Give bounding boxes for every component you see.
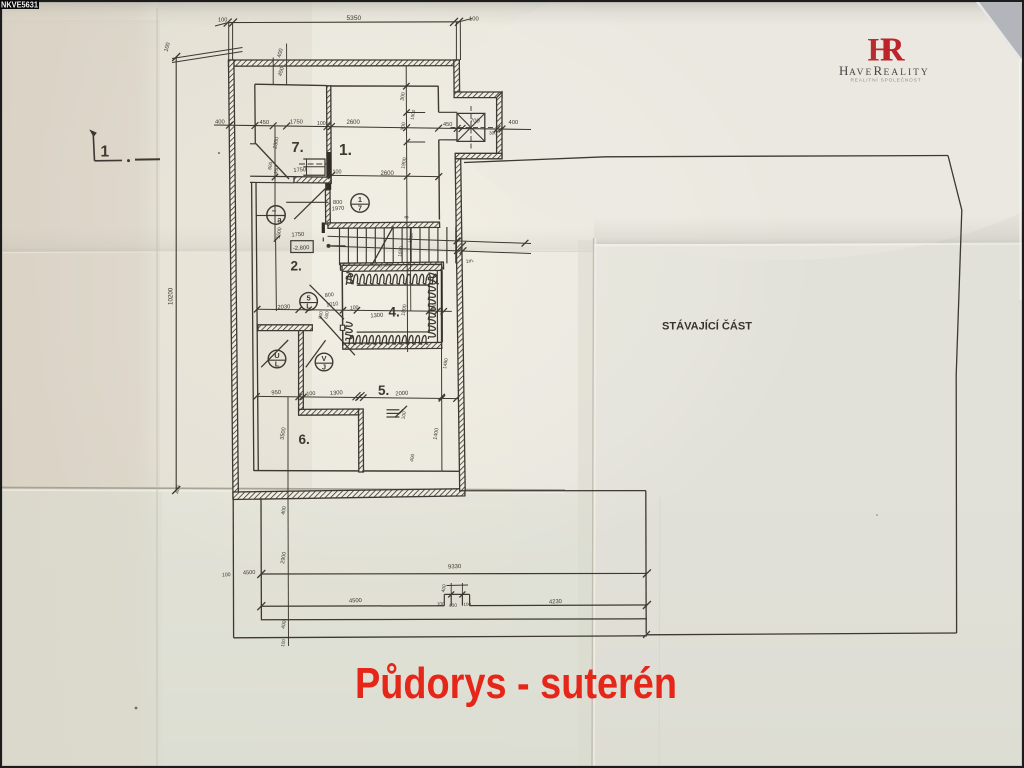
svg-text:10200: 10200 xyxy=(168,287,175,305)
svg-text:Půdorys - suterén: Půdorys - suterén xyxy=(355,660,677,708)
svg-text:100: 100 xyxy=(463,602,471,607)
svg-text:100: 100 xyxy=(306,391,315,398)
svg-text:2600: 2600 xyxy=(347,120,361,126)
svg-text:1750: 1750 xyxy=(291,232,304,239)
svg-text:300: 300 xyxy=(489,131,497,137)
svg-text:100: 100 xyxy=(333,170,342,176)
svg-text:a: a xyxy=(277,216,282,225)
svg-text:100: 100 xyxy=(350,305,359,312)
svg-text:1010: 1010 xyxy=(326,301,339,308)
svg-text:100: 100 xyxy=(222,572,231,578)
svg-text:30: 30 xyxy=(377,263,383,268)
svg-text:EALITY: EALITY xyxy=(884,68,930,78)
svg-text:380: 380 xyxy=(385,262,393,267)
svg-text:400: 400 xyxy=(215,120,225,126)
svg-text:7.: 7. xyxy=(292,140,304,156)
svg-text:2600: 2600 xyxy=(381,171,395,177)
svg-text:5350: 5350 xyxy=(347,15,362,22)
svg-text:1.: 1. xyxy=(339,142,352,159)
svg-text:1750: 1750 xyxy=(293,167,306,174)
svg-text:1: 1 xyxy=(101,144,110,161)
svg-text:450: 450 xyxy=(443,122,452,128)
svg-text:L: L xyxy=(306,302,311,311)
svg-text:J: J xyxy=(322,362,326,371)
svg-text:9330: 9330 xyxy=(448,564,462,570)
svg-text:950: 950 xyxy=(271,390,281,397)
svg-text:100: 100 xyxy=(469,17,479,23)
svg-text:R: R xyxy=(874,63,883,78)
svg-text:NKVE5631: NKVE5631 xyxy=(1,0,39,9)
svg-text:100: 100 xyxy=(317,121,326,127)
svg-text:450: 450 xyxy=(260,120,270,126)
svg-text:4500: 4500 xyxy=(349,598,362,604)
svg-text:−: − xyxy=(272,207,277,216)
svg-text:5.: 5. xyxy=(378,383,389,398)
svg-text:400: 400 xyxy=(509,120,519,126)
svg-text:400: 400 xyxy=(449,603,458,609)
svg-text:1970: 1970 xyxy=(332,206,345,213)
svg-text:R: R xyxy=(880,32,905,69)
svg-text:STÁVAJÍCÍ ČÁST: STÁVAJÍCÍ ČÁST xyxy=(662,320,753,333)
svg-text:2030: 2030 xyxy=(277,304,290,311)
svg-text:100: 100 xyxy=(437,601,445,606)
svg-text:REALITNÍ SPOLEČNOST: REALITNÍ SPOLEČNOST xyxy=(851,76,922,83)
svg-text:800: 800 xyxy=(325,292,335,299)
svg-text:6.: 6. xyxy=(299,432,310,447)
svg-text:H: H xyxy=(839,63,848,78)
svg-text:1m.: 1m. xyxy=(465,258,474,265)
svg-text:4500: 4500 xyxy=(243,570,256,577)
svg-text:2000: 2000 xyxy=(395,391,408,398)
svg-text:7: 7 xyxy=(358,204,362,213)
svg-text:AVE: AVE xyxy=(849,68,873,78)
svg-text:100: 100 xyxy=(218,18,227,24)
svg-text:-2,800: -2,800 xyxy=(293,245,310,252)
svg-text:4.: 4. xyxy=(389,305,400,320)
svg-text:700: 700 xyxy=(470,119,480,125)
svg-text:2.: 2. xyxy=(291,259,302,274)
svg-text:1300: 1300 xyxy=(330,390,343,397)
svg-text:4230: 4230 xyxy=(549,599,562,605)
svg-text:L: L xyxy=(275,359,280,368)
svg-text:1750: 1750 xyxy=(290,120,303,126)
svg-text:1300: 1300 xyxy=(370,313,383,320)
